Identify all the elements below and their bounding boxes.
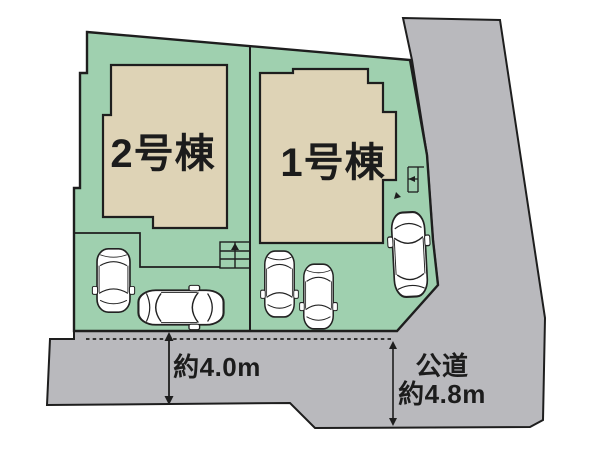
front-road-width-label: 約4.0m <box>173 352 261 382</box>
site-plan-svg: 2号棟 1号棟 約4.0m 公道 約4.8m <box>0 0 600 450</box>
building-2-label: 2号棟 <box>110 132 215 176</box>
side-road-width-label: 約4.8m <box>398 379 486 409</box>
car-icon <box>92 249 134 312</box>
car-icon <box>261 251 299 317</box>
building-1-label: 1号棟 <box>280 141 385 185</box>
side-road-type-label: 公道 <box>415 351 468 381</box>
car-icon <box>138 285 223 329</box>
car-icon <box>300 264 338 329</box>
site-plan-diagram: 2号棟 1号棟 約4.0m 公道 約4.8m <box>0 0 600 450</box>
